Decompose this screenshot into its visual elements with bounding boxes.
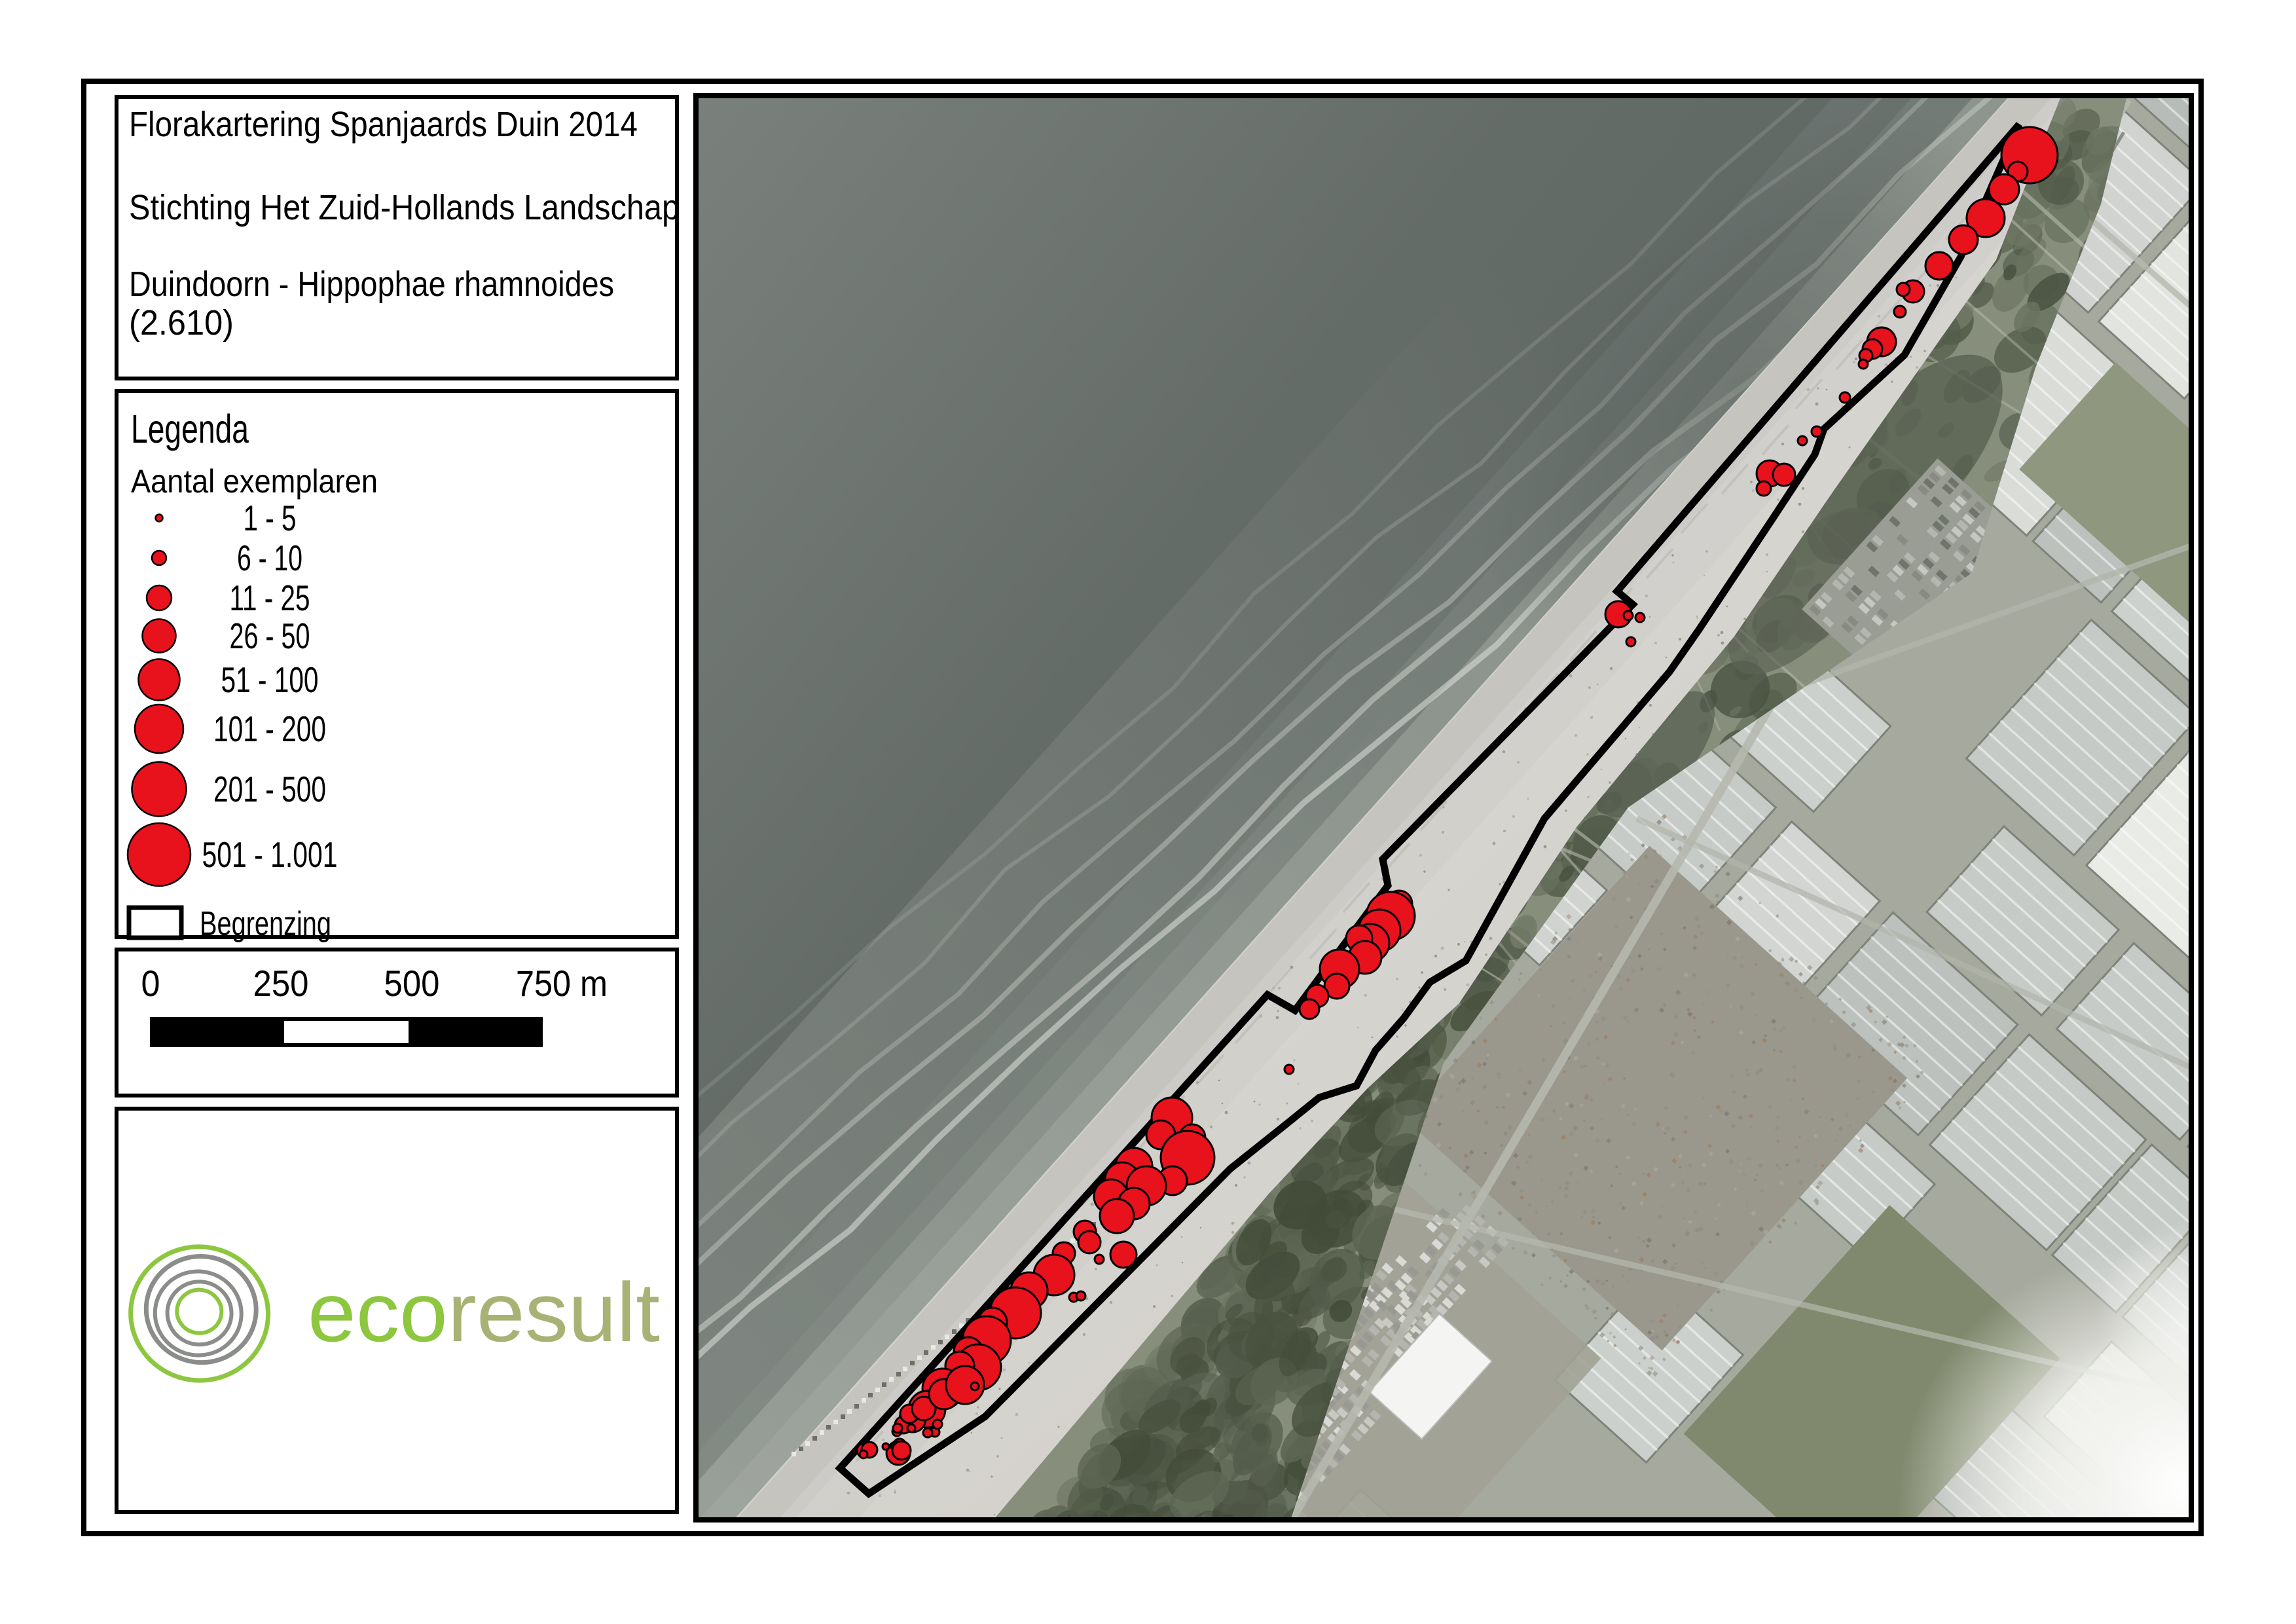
svg-text:51 - 100: 51 - 100 (221, 659, 319, 700)
svg-text:Legenda: Legenda (131, 407, 249, 451)
svg-text:Duindoorn - Hippophae rhamnoid: Duindoorn - Hippophae rhamnoides (129, 265, 614, 304)
svg-text:Aantal exemplaren: Aantal exemplaren (131, 463, 378, 500)
svg-text:750 m: 750 m (516, 963, 608, 1004)
svg-text:Stichting Het Zuid-Hollands La: Stichting Het Zuid-Hollands Landschap (129, 188, 680, 227)
svg-text:1 - 5: 1 - 5 (244, 498, 297, 538)
svg-text:201 - 500: 201 - 500 (213, 769, 326, 809)
svg-text:(2.610): (2.610) (129, 303, 234, 342)
svg-text:101 - 200: 101 - 200 (213, 709, 326, 749)
svg-text:Florakartering Spanjaards Duin: Florakartering Spanjaards Duin 2014 (129, 105, 638, 144)
svg-text:6 - 10: 6 - 10 (237, 538, 302, 578)
svg-text:250: 250 (253, 963, 309, 1004)
svg-text:ecoresult: ecoresult (308, 1266, 660, 1359)
svg-text:0: 0 (141, 963, 160, 1004)
svg-text:501 - 1.001: 501 - 1.001 (202, 834, 338, 875)
svg-text:Begrenzing: Begrenzing (200, 905, 331, 943)
svg-text:26 - 50: 26 - 50 (230, 616, 310, 656)
svg-text:500: 500 (384, 963, 440, 1004)
svg-text:11 - 25: 11 - 25 (230, 578, 310, 618)
